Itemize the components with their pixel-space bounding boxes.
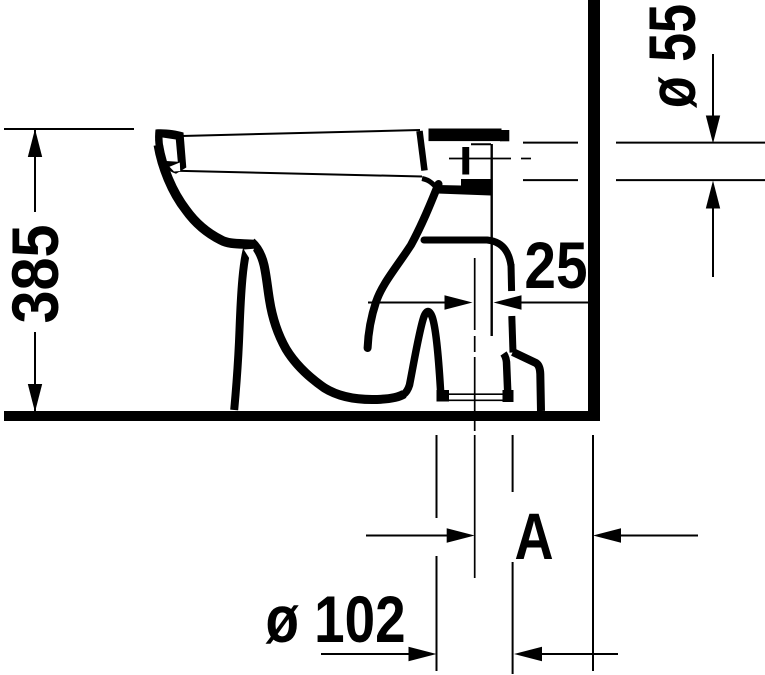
svg-text:ø 102: ø 102 bbox=[265, 582, 405, 656]
svg-text:ø 55: ø 55 bbox=[635, 4, 709, 108]
svg-text:385: 385 bbox=[0, 224, 73, 323]
svg-text:A: A bbox=[514, 499, 553, 573]
svg-text:25: 25 bbox=[524, 229, 587, 303]
